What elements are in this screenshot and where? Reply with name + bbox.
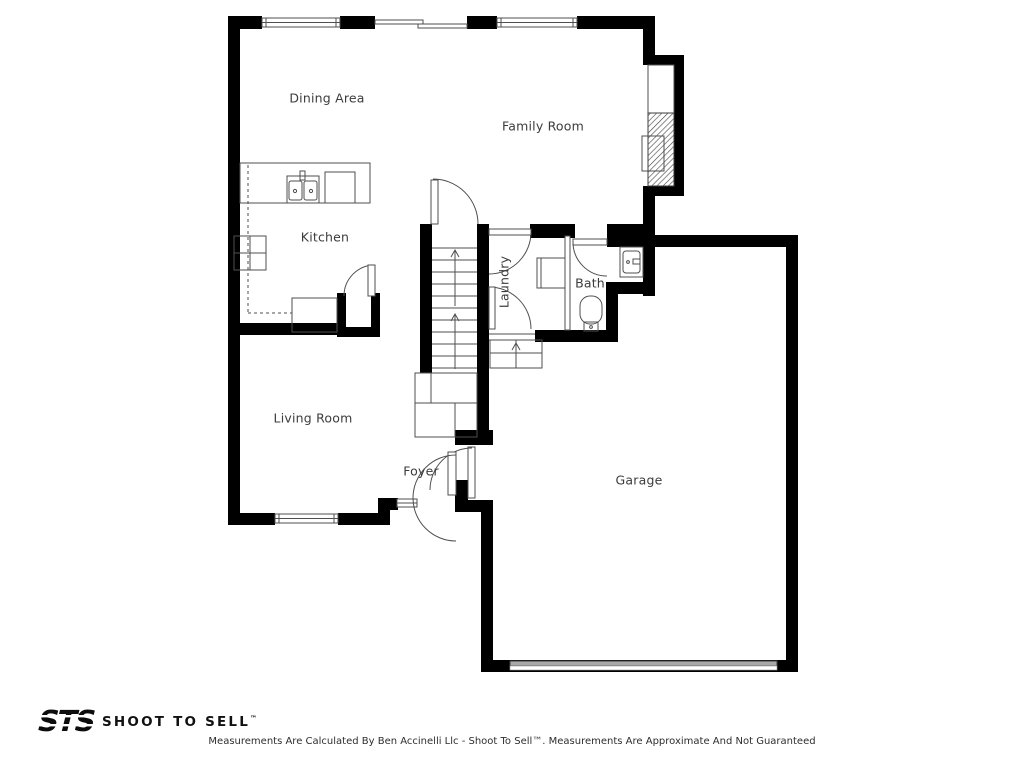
room-label-dining-area: Dining Area — [289, 91, 364, 106]
room-label-living-room: Living Room — [274, 411, 353, 426]
fireplace — [642, 55, 684, 196]
sliding-door — [375, 20, 467, 28]
window — [497, 18, 577, 27]
firebox — [648, 65, 674, 113]
footer: STS SHOOT TO SELL™ Measurements Are Calc… — [0, 700, 1024, 768]
garage-door — [510, 661, 777, 670]
stove — [325, 172, 355, 203]
bathroom-sink — [620, 247, 643, 277]
hearth-hatch — [648, 113, 674, 186]
brand-text: SHOOT TO SELL — [102, 714, 250, 730]
window — [275, 514, 338, 523]
room-label-laundry: Laundry — [497, 256, 512, 308]
kitchen-sink — [287, 171, 319, 203]
brand-name: SHOOT TO SELL™ — [102, 714, 257, 730]
room-label-family-room: Family Room — [502, 119, 584, 134]
room-label-bath: Bath — [575, 276, 605, 291]
toilet — [580, 296, 602, 331]
trademark-symbol: ™ — [250, 715, 257, 723]
room-label-garage: Garage — [616, 473, 663, 488]
floorplan-page: Dining Area Family Room Kitchen Laundry … — [0, 0, 1024, 768]
floorplan-drawing — [0, 0, 1024, 768]
stair-landing — [415, 373, 477, 437]
window — [262, 18, 340, 27]
sts-logo: STS — [35, 706, 97, 736]
sts-logo-text: STS — [35, 706, 97, 736]
room-label-kitchen: Kitchen — [301, 230, 349, 245]
disclaimer-text: Measurements Are Calculated By Ben Accin… — [0, 736, 1024, 747]
washer — [537, 258, 565, 288]
stairs-up-arrow — [512, 343, 520, 366]
partition-wall — [565, 236, 570, 330]
room-label-foyer: Foyer — [403, 464, 439, 479]
stairs-up-arrow — [451, 250, 459, 369]
